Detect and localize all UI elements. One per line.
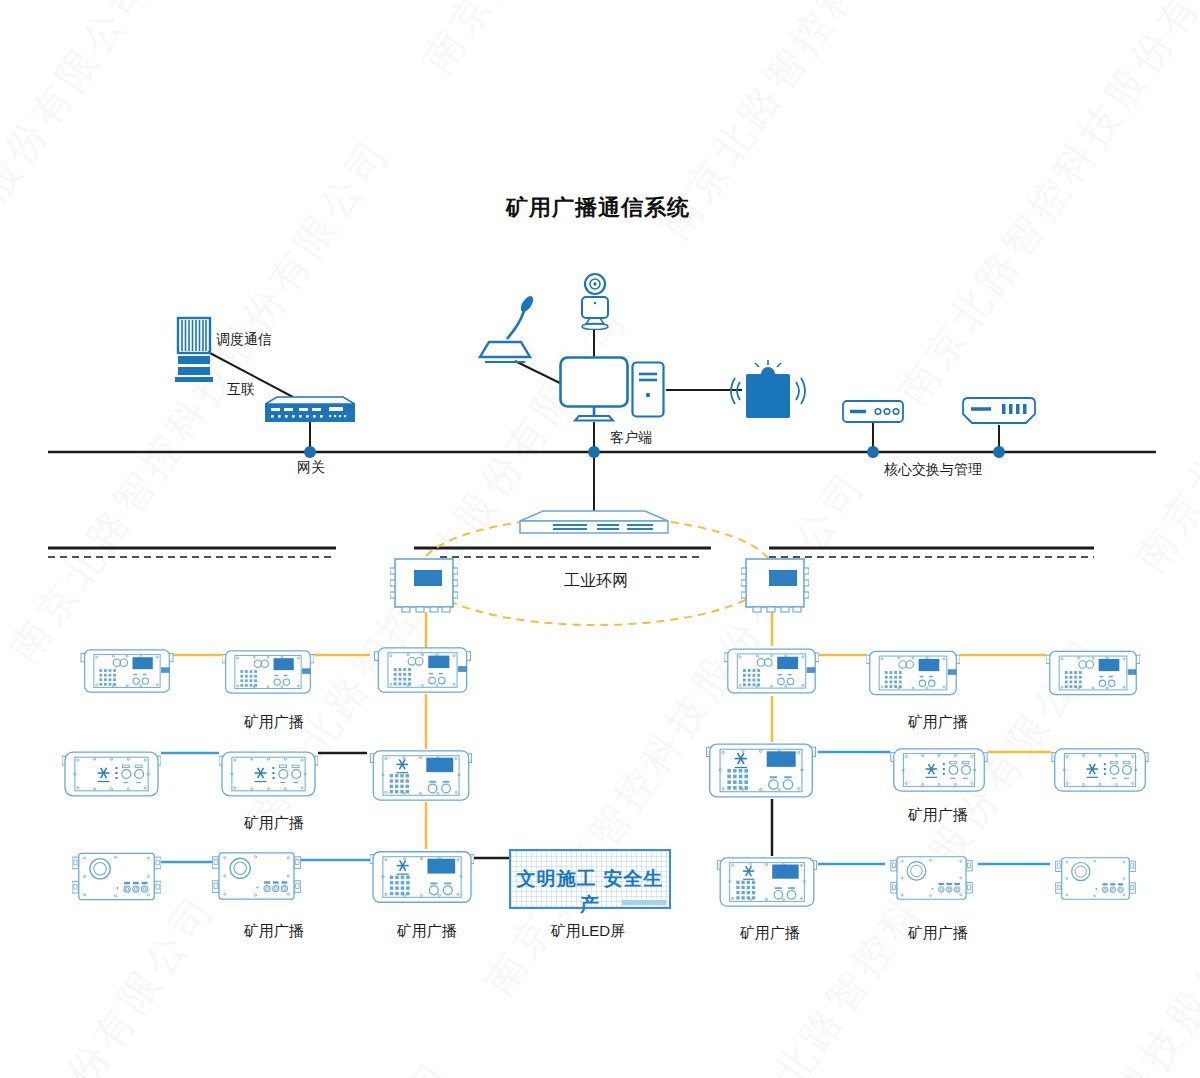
led-screen-chip [622, 900, 666, 905]
amplifier-device [1051, 744, 1149, 796]
label-core-mgmt: 核心交换与管理 [884, 461, 982, 479]
led-screen: 文明施工 安全生产 [509, 849, 671, 909]
broadcast-device [370, 646, 475, 694]
horn-speaker-device [72, 851, 161, 902]
horn-speaker-device [1050, 856, 1141, 901]
label-broadcast: 矿用广播 [244, 713, 304, 732]
network-diagram: 南京北路智控科技股份有限公司 南京北路智控科技股份有限公司 南京北路智控科技股份… [0, 0, 1200, 1078]
dispatch-server-icon [175, 316, 213, 382]
managed-switch-icon [842, 400, 904, 424]
client-monitor-icon [559, 356, 629, 422]
broadcast-device [716, 856, 818, 908]
pc-tower-icon [631, 361, 665, 418]
label-interlink: 互联 [227, 381, 255, 399]
broadcast-device [367, 749, 475, 802]
broadcast-device [370, 849, 474, 905]
ring-hub-switch-icon [519, 510, 669, 535]
gateway-switch-icon [265, 396, 355, 422]
broadcast-device [724, 646, 819, 696]
label-led: 矿用LED屏 [551, 922, 625, 941]
junction-box-right [741, 558, 809, 614]
label-broadcast: 矿用广播 [908, 806, 968, 825]
amplifier-device [890, 744, 988, 796]
broadcast-device [866, 649, 960, 697]
core-switch-icon [962, 397, 1036, 425]
label-broadcast: 矿用广播 [908, 713, 968, 732]
alarm-speaker-icon [730, 358, 806, 420]
camera-icon [578, 272, 612, 330]
label-broadcast: 矿用广播 [244, 814, 304, 833]
label-gateway: 网关 [297, 459, 325, 477]
led-screen-text: 文明施工 安全生产 [511, 866, 669, 918]
horn-speaker-device [212, 851, 301, 901]
label-broadcast: 矿用广播 [244, 922, 304, 941]
broadcast-device [704, 742, 818, 799]
amplifier-device [62, 747, 161, 801]
horn-speaker-device [885, 855, 978, 901]
amplifier-device [219, 747, 318, 801]
label-dispatch: 调度通信 [216, 331, 272, 349]
label-broadcast: 矿用广播 [740, 924, 800, 943]
broadcast-device [1046, 649, 1140, 697]
label-broadcast: 矿用广播 [397, 922, 457, 941]
broadcast-device [222, 648, 314, 696]
diagram-title: 矿用广播通信系统 [506, 193, 690, 223]
broadcast-device [80, 648, 174, 694]
junction-box-left [390, 558, 458, 614]
label-ring: 工业环网 [564, 571, 628, 592]
microphone-icon [478, 296, 540, 364]
label-broadcast: 矿用广播 [908, 924, 968, 943]
label-client: 客户端 [610, 429, 652, 447]
